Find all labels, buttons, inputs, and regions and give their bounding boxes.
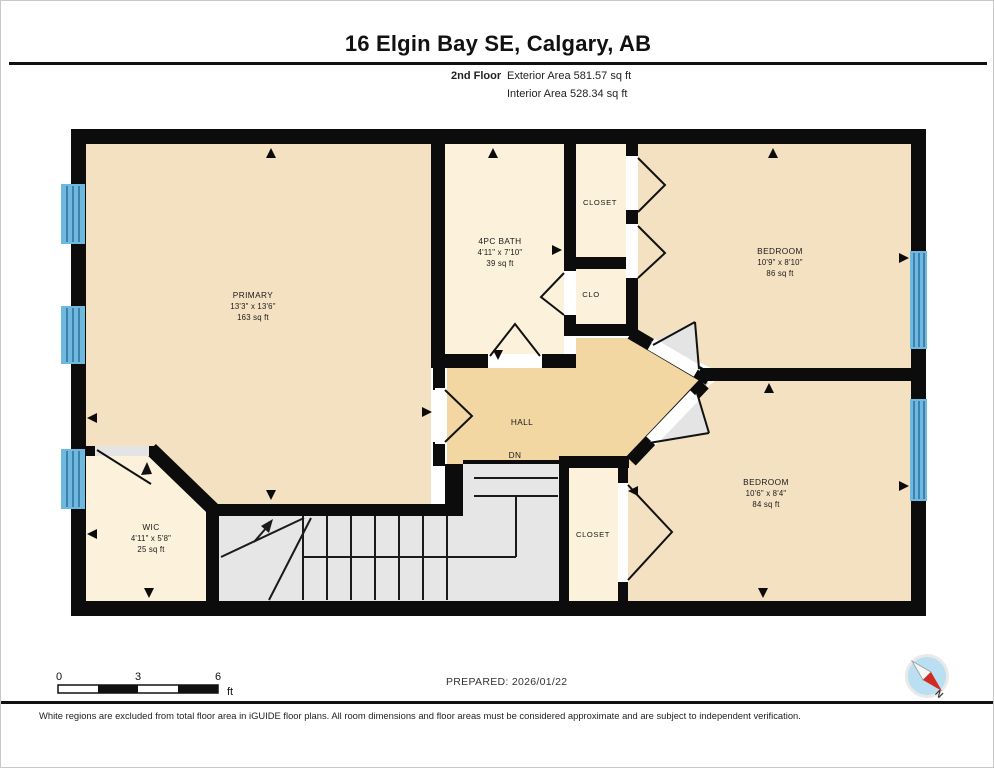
hall-label: HALL bbox=[511, 417, 533, 427]
scale-mid: 3 bbox=[135, 671, 141, 683]
bath-label: 4PC BATH bbox=[478, 236, 521, 246]
wic-dims: 4'11" x 5'8" bbox=[131, 534, 171, 543]
primary-dims: 13'3" x 13'6" bbox=[230, 302, 275, 311]
floorplan-drawing: PRIMARY 13'3" x 13'6" 163 sq ft 4PC BATH… bbox=[1, 1, 994, 768]
bedroom-bottom-area: 84 sq ft bbox=[752, 500, 780, 509]
closet-top-door1-opening bbox=[626, 156, 638, 210]
wic-area: 25 sq ft bbox=[137, 545, 165, 554]
stairs-dn-label: DN bbox=[509, 450, 522, 460]
prepared-date: PREPARED: 2026/01/22 bbox=[446, 676, 567, 688]
closet-top-label: CLOSET bbox=[583, 198, 617, 207]
window-left-3 bbox=[61, 449, 85, 509]
compass-logo: N bbox=[907, 656, 948, 701]
bedroom-bottom-label: BEDROOM bbox=[743, 477, 789, 487]
scale-start: 0 bbox=[56, 671, 62, 683]
closet-bottom-door-opening bbox=[618, 483, 628, 582]
bedroom-top-dims: 10'9" x 8'10" bbox=[757, 258, 802, 267]
primary-label: PRIMARY bbox=[233, 290, 274, 300]
window-right-2 bbox=[910, 399, 927, 501]
bath-dims: 4'11" x 7'10" bbox=[478, 248, 523, 257]
clo-door-opening bbox=[564, 271, 576, 315]
disclaimer-text: White regions are excluded from total fl… bbox=[39, 710, 801, 721]
window-right-1 bbox=[910, 251, 927, 349]
wic-label: WIC bbox=[142, 522, 159, 532]
scale-bar: 0 3 6 ft bbox=[56, 671, 233, 698]
primary-door-opening bbox=[435, 388, 445, 444]
bedroom-top-label: BEDROOM bbox=[757, 246, 803, 256]
footer-divider bbox=[1, 701, 994, 704]
primary-area: 163 sq ft bbox=[237, 313, 269, 322]
window-left-1 bbox=[61, 184, 85, 244]
scale-unit: ft bbox=[227, 686, 233, 698]
bedroom-top-area: 86 sq ft bbox=[766, 269, 794, 278]
scale-end: 6 bbox=[215, 671, 221, 683]
bath-area: 39 sq ft bbox=[486, 259, 514, 268]
floorplan-page: 16 Elgin Bay SE, Calgary, AB 2nd Floor E… bbox=[0, 0, 994, 768]
closet-top-door2-opening bbox=[626, 224, 638, 278]
closet-bottom-label: CLOSET bbox=[576, 530, 610, 539]
bedroom-bottom-dims: 10'6" x 8'4" bbox=[746, 489, 787, 498]
window-left-2 bbox=[61, 306, 85, 364]
clo-label: CLO bbox=[582, 290, 599, 299]
